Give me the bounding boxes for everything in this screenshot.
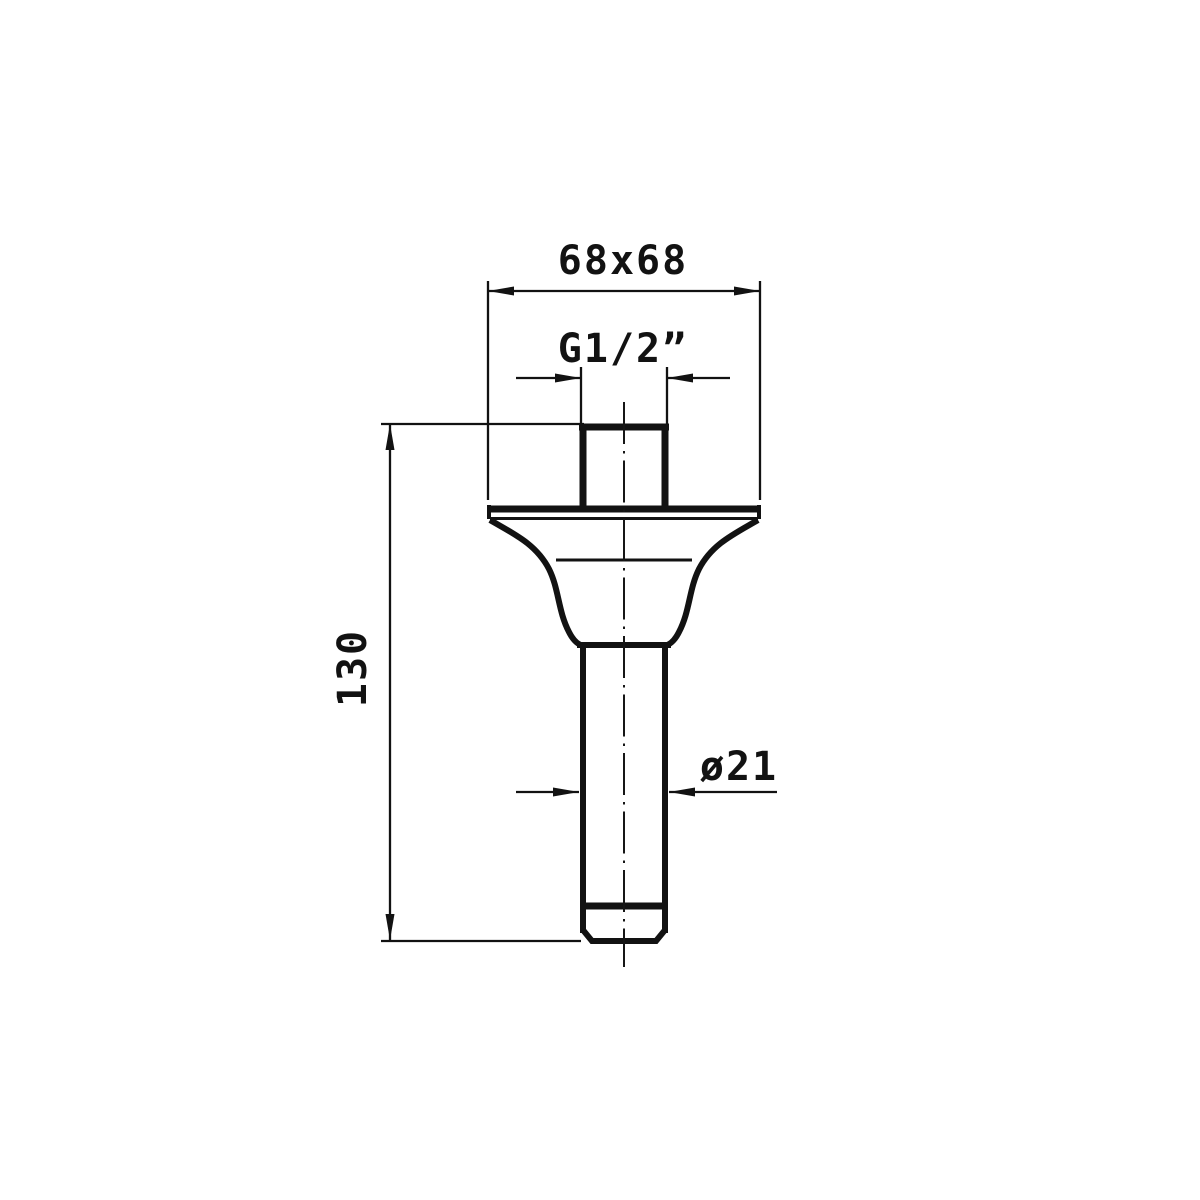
dim-arrow-inward-right-icon <box>553 788 579 797</box>
dim-arrow-inward-left-icon <box>667 374 693 383</box>
dim-arrow-right-icon <box>734 287 760 296</box>
dim-arrow-inward-left-icon <box>669 788 695 797</box>
part-outline <box>487 427 761 941</box>
technical-drawing-canvas: 68x68 G1/2” 130 ø21 <box>0 0 1200 1200</box>
dim-arrow-down-icon <box>386 914 395 940</box>
dimension-tube-diameter: ø21 <box>516 744 778 797</box>
dim-arrow-left-icon <box>488 287 514 296</box>
dim-arrow-inward-right-icon <box>555 374 581 383</box>
dim-arrow-up-icon <box>386 424 395 450</box>
technical-drawing-page: 68x68 G1/2” 130 ø21 <box>0 0 1200 1200</box>
dim-label-thread-size: G1/2” <box>558 326 688 372</box>
bell-body-left-silhouette <box>490 520 584 646</box>
dim-label-plate-size: 68x68 <box>558 238 688 284</box>
dimension-overall-length: 130 <box>330 424 584 941</box>
dim-label-overall-length: 130 <box>330 629 376 707</box>
bell-body-right-silhouette <box>664 520 758 646</box>
dim-label-tube-diameter: ø21 <box>700 744 778 790</box>
